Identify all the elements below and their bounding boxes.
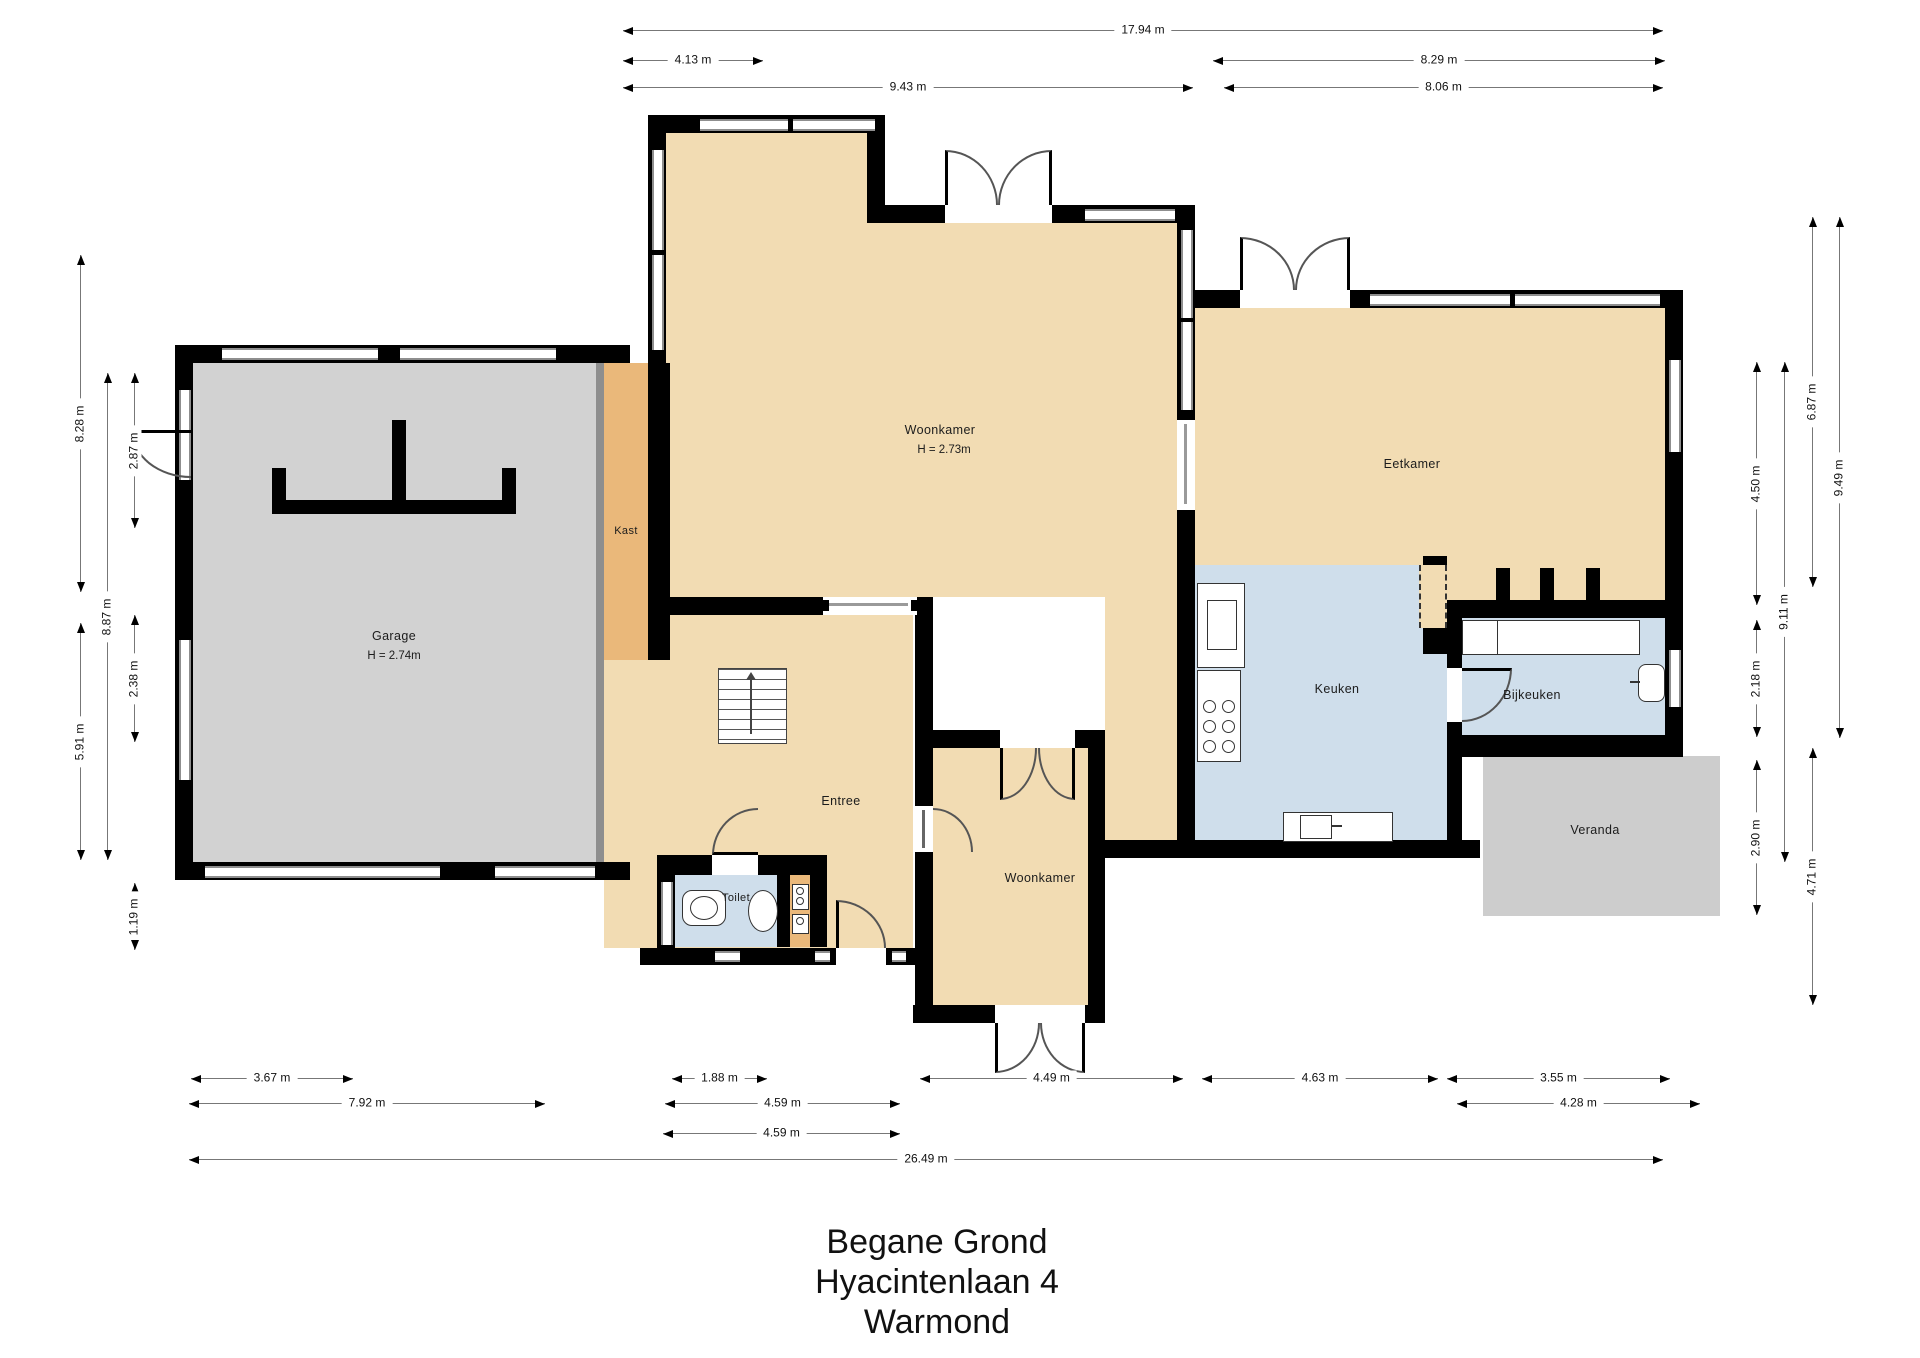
- wall-kast-right: [648, 363, 670, 660]
- wall-stub-2: [1540, 568, 1554, 600]
- garage-structure-tick-left: [272, 468, 286, 500]
- wall-lowerwk-top-a: [930, 730, 1000, 748]
- dim-label: 1.88 m: [694, 1071, 745, 1086]
- window-eetkamer-top-1: [1370, 294, 1510, 306]
- window-garage-top-1: [222, 348, 378, 360]
- dim-label: 6.87 m: [1805, 377, 1820, 428]
- floor-woonkamer-main: [885, 223, 1177, 597]
- dim-top-left-small: 4.13 m: [623, 60, 763, 61]
- island-sink: [1300, 815, 1332, 839]
- wall-keuken-bottom: [1105, 840, 1480, 858]
- opening-dashed-passage: [1419, 565, 1447, 628]
- wall-dash-bottom: [1423, 628, 1447, 654]
- wall-woonkamer-top-a: [885, 205, 945, 223]
- stove-burner-3: [1203, 720, 1216, 733]
- dim-label: 8.06 m: [1418, 80, 1469, 95]
- opening-eetkamer-topdoor: [1240, 290, 1350, 308]
- wall-toilet-top-b: [758, 855, 827, 875]
- meterkast-dial-3: [796, 917, 804, 925]
- title-floor: Begane Grond: [815, 1222, 1059, 1262]
- bijkeuken-appliance: [1462, 620, 1498, 655]
- wall-entree-wk-b: [915, 852, 933, 1023]
- room-label-keuken: Keuken: [1315, 682, 1360, 696]
- dim-label: 4.28 m: [1553, 1096, 1604, 1111]
- wall-garage-right-thin: [596, 363, 604, 862]
- dim-right-inner-2: 2.18 m: [1756, 620, 1757, 737]
- window-woonkamer-right-1: [1181, 230, 1193, 318]
- wall-bijkeuken-bottom: [1447, 735, 1683, 757]
- room-height-woonkamer: H = 2.73m: [917, 444, 970, 456]
- dim-left-upper-outer: 8.28 m: [80, 255, 81, 592]
- wall-step: [867, 133, 885, 223]
- dim-left-inner-3: 1.19 m: [134, 883, 135, 950]
- dim-bottom-r1-entree: 1.88 m: [672, 1078, 767, 1079]
- washbasin: [748, 890, 778, 932]
- wall-keuken-bijkeuken-a: [1447, 612, 1462, 668]
- dim-label: 4.63 m: [1295, 1071, 1346, 1086]
- dim-label: 4.59 m: [756, 1126, 807, 1141]
- window-topleft-top-1: [700, 119, 788, 131]
- dim-label: 2.38 m: [127, 653, 142, 704]
- dim-bottom-r3-entree: 4.59 m: [663, 1133, 900, 1134]
- floorplan-canvas: Woonkamer H = 2.73m Garage H = 2.74m Kas…: [0, 0, 1920, 1358]
- dim-right-outer: 9.49 m: [1839, 217, 1840, 738]
- window-bijkeuken-right: [1669, 650, 1681, 707]
- dim-label: 4.50 m: [1749, 458, 1764, 509]
- room-height-garage: H = 2.74m: [367, 650, 420, 662]
- opening-lowerwk-bottom: [995, 1005, 1085, 1023]
- stove-burner-4: [1222, 720, 1235, 733]
- dim-bottom-r1-woonkamer: 4.49 m: [920, 1078, 1183, 1079]
- dim-right-middle-2: 6.87 m: [1812, 217, 1813, 587]
- door-woonkamer-top-left-leaf: [945, 150, 998, 205]
- dim-top-total: 17.94 m: [623, 30, 1663, 31]
- room-label-toilet: Toilet: [722, 892, 750, 904]
- wall-toilet-right: [777, 875, 790, 947]
- window-entree-bottom-2: [890, 951, 906, 962]
- dim-right-inner-1: 4.50 m: [1756, 362, 1757, 605]
- dim-label: 3.55 m: [1533, 1071, 1584, 1086]
- door-woonkamer-top-right-leaf: [998, 150, 1052, 205]
- wall-stub-3: [1586, 568, 1600, 600]
- dim-left-inner-2: 2.38 m: [134, 615, 135, 742]
- dim-right-inner-3: 2.90 m: [1756, 760, 1757, 915]
- dim-label: 4.71 m: [1805, 851, 1820, 902]
- dim-bottom-r1-garage: 3.67 m: [191, 1078, 353, 1079]
- room-label-woonkamer-lower: Woonkamer: [1005, 871, 1076, 885]
- title-address: Hyacintenlaan 4: [815, 1262, 1059, 1302]
- wall-woonkamer-right-lower: [1177, 510, 1195, 840]
- window-woonkamer-right-2: [1181, 322, 1193, 410]
- window-eetkamer-right: [1669, 360, 1681, 452]
- window-tick-1: [830, 948, 836, 965]
- opening-toilet-door: [712, 855, 758, 875]
- room-label-bijkeuken: Bijkeuken: [1503, 688, 1561, 702]
- staircase-arrow-head: [746, 672, 756, 680]
- floor-kast: [604, 363, 648, 660]
- opening-lowerwk-top: [1000, 730, 1075, 748]
- room-label-kast: Kast: [614, 525, 638, 537]
- door-eetkamer-top-left-leaf: [1240, 237, 1295, 290]
- wall-entree-wk-a: [915, 597, 933, 806]
- dim-label: 9.43 m: [883, 80, 934, 95]
- bijkeuken-sink: [1638, 664, 1665, 702]
- window-topleft-left-1: [652, 150, 664, 250]
- dim-label: 4.49 m: [1026, 1071, 1077, 1086]
- floor-passage: [1105, 565, 1177, 858]
- dim-top-right-lower: 8.06 m: [1224, 87, 1663, 88]
- dim-right-middle-3: 4.71 m: [1812, 748, 1813, 1005]
- door-french-left-leaf: [995, 1023, 1040, 1073]
- dim-label: 7.92 m: [342, 1096, 393, 1111]
- dim-top-right-upper: 8.29 m: [1213, 60, 1665, 61]
- opening-frontdoor: [836, 948, 888, 965]
- dim-label: 26.49 m: [897, 1152, 954, 1167]
- window-garage-bottom-2: [495, 866, 595, 878]
- dim-left-middle: 8.87 m: [107, 373, 108, 860]
- dim-label: 2.18 m: [1749, 653, 1764, 704]
- dim-label: 5.91 m: [73, 716, 88, 767]
- dim-bottom-total: 26.49 m: [189, 1159, 1663, 1160]
- wall-lowerwk-bottom-a: [913, 1005, 995, 1023]
- window-garage-bottom-1: [205, 866, 440, 878]
- dim-label: 2.87 m: [127, 425, 142, 476]
- wall-meterkast-right: [810, 875, 827, 947]
- door-eetkamer-top-right-leaf: [1295, 237, 1350, 290]
- wall-keuken-bijkeuken-b: [1447, 722, 1462, 858]
- opening-woonkamer-topdoor: [945, 205, 1052, 223]
- dim-label: 8.29 m: [1414, 53, 1465, 68]
- wall-stub-1: [1496, 568, 1510, 600]
- dim-right-middle-1: 9.11 m: [1784, 362, 1785, 862]
- slider-panel-entree-wk: [922, 810, 925, 848]
- room-label-veranda: Veranda: [1570, 823, 1619, 837]
- garage-structure-tick-right: [502, 468, 516, 500]
- bijkeuken-sink-tap: [1630, 681, 1640, 683]
- dim-label: 1.19 m: [127, 891, 142, 942]
- wall-lowerwk-right: [1088, 730, 1105, 1023]
- dim-bottom-r1-keuken: 4.63 m: [1202, 1078, 1438, 1079]
- toilet-seat: [690, 896, 718, 920]
- floor-eetkamer: [1195, 308, 1665, 565]
- stove-burner-5: [1203, 740, 1216, 753]
- slider-panel-wk-eetkamer: [1184, 424, 1187, 504]
- dim-bottom-r2-right: 4.28 m: [1457, 1103, 1700, 1104]
- floor-woonkamer-upper: [666, 133, 885, 615]
- stove-burner-2: [1222, 700, 1235, 713]
- stove-burner-1: [1203, 700, 1216, 713]
- slider-end-left: [823, 600, 829, 611]
- slider-end-right: [911, 600, 917, 611]
- title-city: Warmond: [815, 1302, 1059, 1342]
- window-toilet-left: [661, 882, 673, 945]
- staircase-arrow: [750, 676, 752, 734]
- window-toilet-bottom: [715, 951, 740, 962]
- dim-label: 9.11 m: [1777, 587, 1792, 637]
- window-eetkamer-top-2: [1515, 294, 1660, 306]
- wall-bijkeuken-top: [1447, 600, 1665, 618]
- dim-label: 9.49 m: [1832, 452, 1847, 503]
- dim-label: 4.59 m: [757, 1096, 808, 1111]
- dim-label: 8.28 m: [73, 398, 88, 449]
- window-woonkamer-top: [1085, 209, 1175, 221]
- dim-bottom-r2-entree: 4.59 m: [665, 1103, 900, 1104]
- meterkast-dial-2: [796, 897, 804, 905]
- room-label-woonkamer: Woonkamer: [905, 423, 976, 437]
- room-label-eetkamer: Eetkamer: [1384, 457, 1441, 471]
- title-block: Begane Grond Hyacintenlaan 4 Warmond: [815, 1222, 1059, 1342]
- garage-structure-stem: [392, 420, 406, 500]
- room-label-entree: Entree: [821, 794, 860, 808]
- dim-left-lower-outer: 5.91 m: [80, 623, 81, 860]
- dim-label: 3.67 m: [247, 1071, 298, 1086]
- window-topleft-top-2: [793, 119, 875, 131]
- opening-keuken-bijkeuken: [1447, 668, 1462, 722]
- slider-panel-interior: [828, 603, 908, 606]
- island-faucet: [1332, 825, 1342, 827]
- dim-label: 4.13 m: [668, 53, 719, 68]
- room-label-garage: Garage: [372, 629, 416, 643]
- dim-label: 17.94 m: [1114, 23, 1171, 38]
- window-garage-left-2: [179, 640, 191, 780]
- door-french-right-leaf: [1040, 1023, 1085, 1073]
- garage-structure-bar: [272, 500, 516, 514]
- wall-lowerwk-bottom-b: [1085, 1005, 1105, 1023]
- dim-bottom-r1-veranda: 3.55 m: [1447, 1078, 1670, 1079]
- opening-interior-slider: [823, 597, 917, 615]
- kitchen-sink: [1207, 600, 1237, 650]
- window-tick-2: [886, 948, 892, 965]
- wall-interior-horizontal: [648, 597, 823, 615]
- dim-label: 2.90 m: [1749, 812, 1764, 863]
- stove-burner-6: [1222, 740, 1235, 753]
- dim-top-left-wide: 9.43 m: [623, 87, 1193, 88]
- dim-label: 8.87 m: [100, 591, 115, 642]
- window-topleft-left-2: [652, 255, 664, 350]
- meterkast-dial-1: [796, 887, 804, 895]
- dim-bottom-r2-garage: 7.92 m: [189, 1103, 545, 1104]
- dim-left-inner-1: 2.87 m: [134, 373, 135, 528]
- window-garage-top-2: [400, 348, 556, 360]
